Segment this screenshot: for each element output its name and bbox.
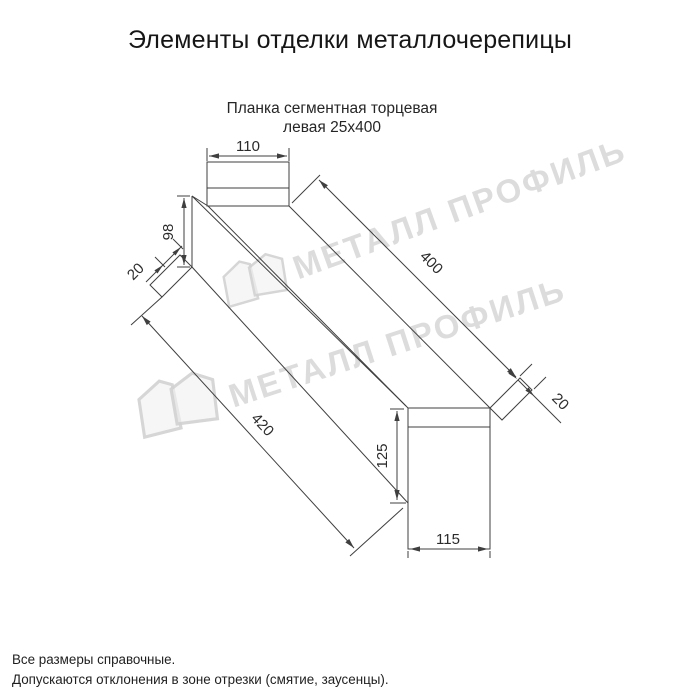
watermark-lower: МЕТАЛЛ ПРОФИЛЬ [130,253,571,443]
footnotes: Все размеры справочные. Допускаются откл… [12,650,389,689]
left-hem-flap [150,255,192,297]
top-end-face [207,162,289,206]
watermark-upper: МЕТАЛЛ ПРОФИЛЬ [216,124,631,311]
footnote-line-2: Допускаются отклонения в зоне отрезки (с… [12,670,389,690]
dim-label-top-width: 110 [236,138,260,155]
bottom-end-face [408,408,490,549]
metallprofil-logo-icon [130,365,225,442]
dim-label-bottom-edge-length: 420 [248,410,278,440]
dim-label-top-edge-length: 400 [416,248,446,278]
right-hem-flap [490,378,532,420]
dim-label-left-web-height: 98 [160,224,177,241]
dim-right-web-height: 125 [374,409,406,503]
footnote-line-1: Все размеры справочные. [12,650,389,670]
dim-right-hem: 20 [508,370,572,423]
technical-drawing: МЕТАЛЛ ПРОФИЛЬ МЕТАЛЛ ПРОФИЛЬ [0,0,700,700]
dim-bottom-width: 115 [408,531,490,558]
watermark-text: МЕТАЛЛ ПРОФИЛЬ [288,131,631,286]
dim-left-web-height: 98 [160,196,190,267]
dim-label-right-hem: 20 [548,390,572,414]
dim-label-left-hem: 20 [124,260,148,284]
dim-top-width: 110 [207,138,289,161]
dim-label-right-web-height: 125 [374,443,391,468]
dim-label-bottom-width: 115 [436,531,460,548]
